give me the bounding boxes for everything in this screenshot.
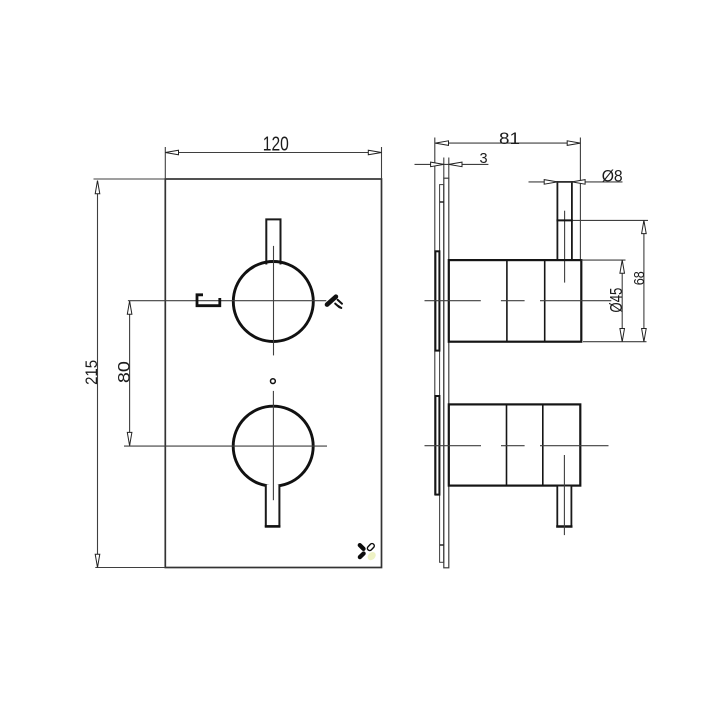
svg-text:68: 68 xyxy=(631,271,648,285)
svg-text:Ø8: Ø8 xyxy=(602,167,623,186)
svg-text:81: 81 xyxy=(499,129,520,148)
svg-text:215: 215 xyxy=(83,360,101,385)
svg-text:3: 3 xyxy=(479,151,487,167)
svg-text:120: 120 xyxy=(263,133,289,156)
svg-text:Ø45: Ø45 xyxy=(606,288,626,313)
svg-text:80: 80 xyxy=(116,361,134,383)
